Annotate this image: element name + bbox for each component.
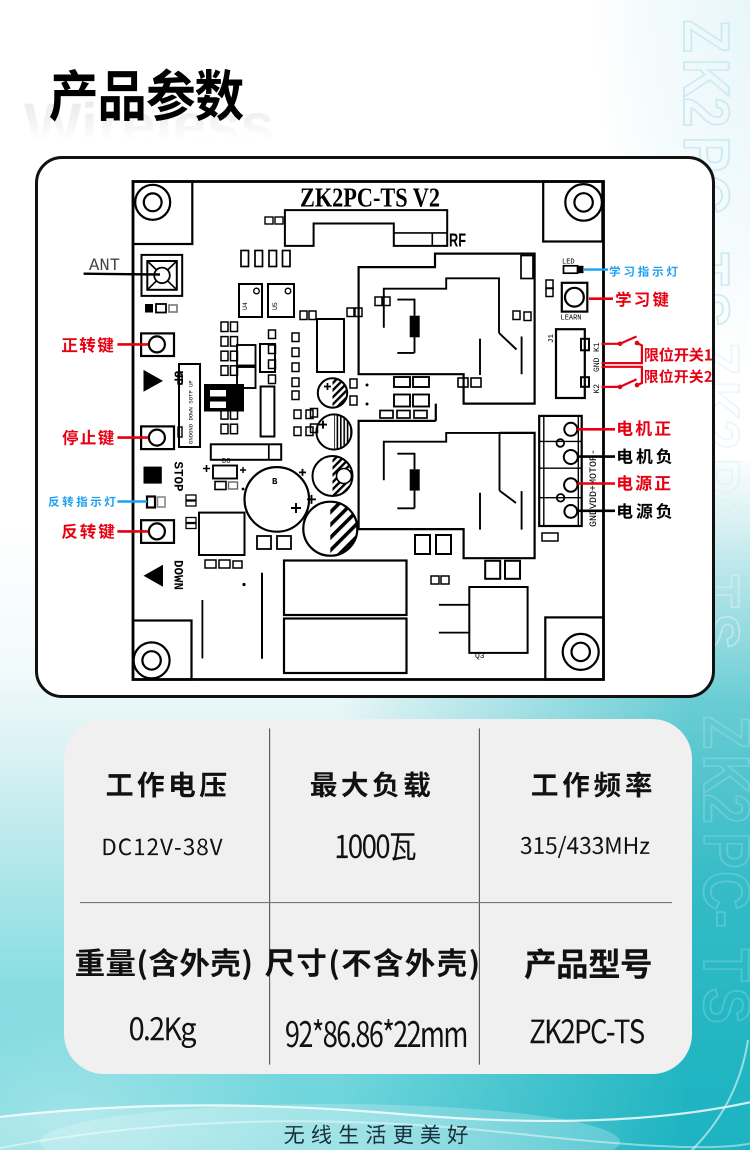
svg-text:Q3: Q3 [475, 652, 485, 661]
svg-text:B: B [272, 477, 278, 487]
svg-text:K2: K2 [593, 384, 602, 394]
svg-text:GNDVDD+MOTOR-: GNDVDD+MOTOR- [589, 449, 600, 527]
svg-text:RF: RF [449, 231, 466, 251]
svg-text:U4: U4 [242, 302, 249, 310]
svg-text:DOWN: DOWN [171, 560, 185, 590]
svg-text:GND: GND [593, 357, 602, 372]
svg-text:ANT: ANT [89, 256, 120, 276]
svg-text:STOP: STOP [171, 462, 185, 492]
svg-text:ZK2PC-TS V2: ZK2PC-TS V2 [300, 183, 440, 213]
svg-text:J1: J1 [548, 333, 556, 343]
svg-text:U5: U5 [272, 302, 279, 310]
svg-text:LEARN: LEARN [561, 315, 582, 323]
svg-text:GNDGND DOWN SOTP UP: GNDGND DOWN SOTP UP [188, 380, 195, 444]
svg-text:K1: K1 [593, 342, 602, 352]
